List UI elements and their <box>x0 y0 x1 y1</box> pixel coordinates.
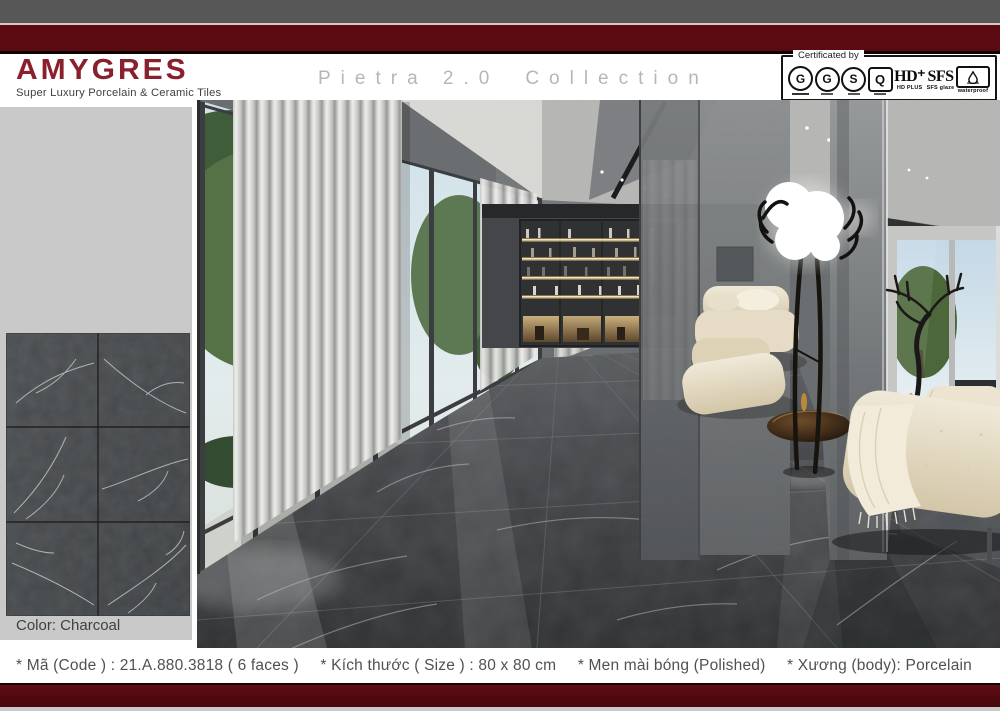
certification-label: Certificated by <box>793 50 864 61</box>
color-label: Color: Charcoal <box>16 617 120 634</box>
g-iso-cert-icon: G <box>788 66 813 95</box>
brand-block: AMYGRES Super Luxury Porcelain & Ceramic… <box>16 56 221 99</box>
droplet-icon <box>966 71 980 84</box>
hd-plus-logo: HD⁺ HD PLUS <box>894 69 925 92</box>
tile-sample <box>6 333 190 616</box>
spec-code: * Mã (Code ) : 21.A.880.3818 ( 6 faces ) <box>16 657 299 675</box>
top-maroon-bar <box>0 25 1000 51</box>
cert-smalltext <box>848 93 860 95</box>
bench-leg <box>987 528 992 564</box>
round-side-table <box>767 410 851 442</box>
sfs-glaze-logo: SFS SFS glaze <box>927 69 955 92</box>
room-render <box>197 100 1000 648</box>
brand-tagline: Super Luxury Porcelain & Ceramic Tiles <box>16 87 221 99</box>
g-japan-cert-icon: G <box>815 67 840 95</box>
window-edge <box>197 100 200 574</box>
collection-title: Pietra 2.0Collection <box>318 68 709 90</box>
spec-size: * Kích thước ( Size ) : 80 x 80 cm <box>320 657 556 675</box>
bottom-strip <box>0 707 1000 711</box>
cert-smalltext <box>821 93 833 95</box>
cert-smalltext <box>792 93 809 95</box>
spec-body: * Xương (body): Porcelain <box>787 657 972 675</box>
sidebar: Color: Charcoal <box>0 100 197 648</box>
lamp-gold-accent <box>801 393 807 411</box>
collection-word: Collection <box>525 68 708 89</box>
collection-name: Pietra 2.0 <box>318 68 499 89</box>
certification-box: Certificated by G G S Q <box>781 55 997 101</box>
catalog-page: AMYGRES Super Luxury Porcelain & Ceramic… <box>0 0 1000 711</box>
spec-bar: * Mã (Code ) : 21.A.880.3818 ( 6 faces )… <box>0 648 1000 683</box>
cert-smalltext <box>874 93 886 95</box>
wall-art <box>717 247 753 281</box>
brand-logo: AMYGRES <box>16 56 221 85</box>
quacert-icon: Q <box>868 67 893 95</box>
lit-niches <box>523 316 641 342</box>
header: AMYGRES Super Luxury Porcelain & Ceramic… <box>0 54 1000 100</box>
waterproof-icon: waterproof <box>956 66 990 95</box>
main-content: Color: Charcoal <box>0 100 1000 648</box>
top-gray-bar <box>0 0 1000 23</box>
pillow <box>707 293 739 311</box>
pillow <box>735 289 779 311</box>
certification-logos: G G S Q HD⁺ HD PLUS <box>783 57 995 95</box>
shelving-unit <box>520 220 643 346</box>
spec-finish: * Men mài bóng (Polished) <box>578 657 766 675</box>
s-mark-cert-icon: S <box>841 67 866 95</box>
daybed-bench <box>832 386 1000 564</box>
bottom-maroon-bar <box>0 683 1000 707</box>
